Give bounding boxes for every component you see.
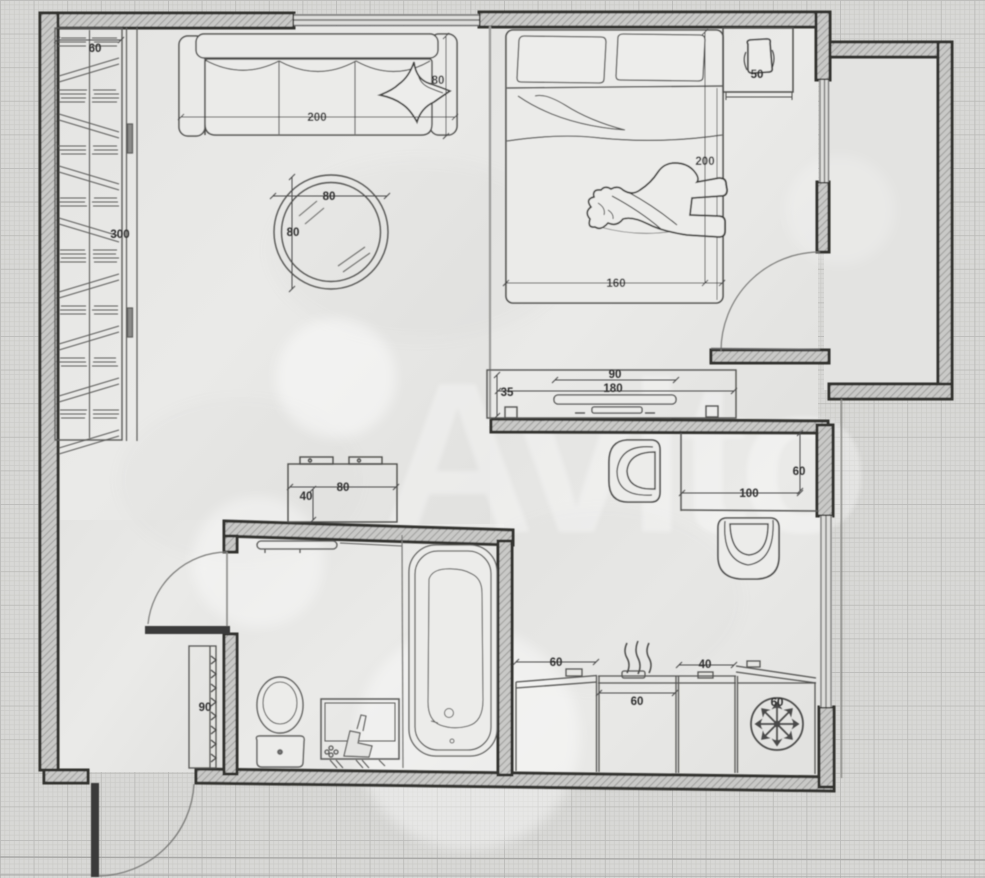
svg-text:180: 180 — [603, 383, 622, 395]
svg-text:90: 90 — [199, 702, 212, 714]
svg-text:200: 200 — [695, 156, 714, 168]
svg-text:60: 60 — [771, 697, 784, 709]
svg-text:80: 80 — [323, 191, 336, 203]
svg-text:160: 160 — [606, 278, 625, 290]
svg-text:40: 40 — [300, 491, 313, 503]
svg-text:60: 60 — [550, 657, 563, 669]
svg-text:50: 50 — [751, 69, 764, 81]
svg-text:200: 200 — [307, 112, 326, 124]
svg-text:80: 80 — [337, 482, 350, 494]
svg-text:80: 80 — [432, 75, 445, 87]
svg-text:80: 80 — [287, 227, 300, 239]
svg-text:300: 300 — [110, 229, 129, 241]
svg-text:40: 40 — [699, 659, 712, 671]
svg-text:60: 60 — [793, 466, 806, 478]
svg-text:100: 100 — [739, 488, 758, 500]
svg-text:35: 35 — [501, 387, 514, 399]
svg-text:60: 60 — [631, 696, 644, 708]
svg-text:60: 60 — [89, 43, 102, 55]
svg-text:90: 90 — [609, 369, 622, 381]
